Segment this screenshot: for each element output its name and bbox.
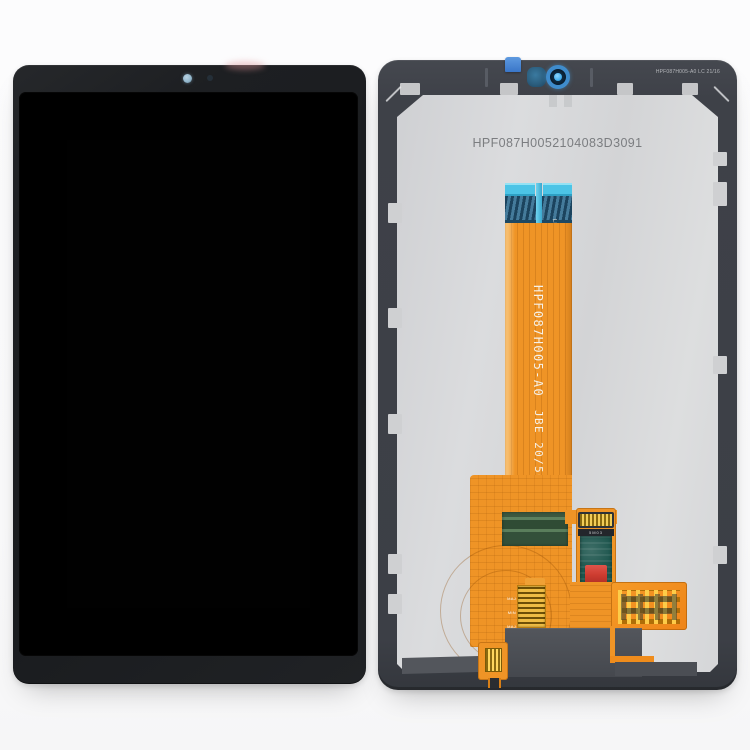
- flex-batch-code: JBE 20/50: [532, 410, 545, 482]
- edge-notch: [388, 554, 402, 574]
- component-grid: [621, 594, 677, 620]
- reflection-highlight: [225, 61, 265, 70]
- corner-highlight: [713, 86, 729, 102]
- edge-notch: [388, 308, 402, 328]
- edge-notch: [388, 414, 402, 434]
- front-screen: [19, 92, 358, 656]
- blue-pull-tab: [505, 57, 521, 72]
- edge-notch: [713, 546, 727, 564]
- bottom-connector-tip: [488, 678, 501, 688]
- antenna-window-tab: [617, 83, 633, 95]
- antenna-window-tab: [400, 83, 420, 95]
- stiffener-bar: [502, 512, 568, 546]
- front-camera-icon: [183, 74, 192, 83]
- emi-shield-step: [615, 662, 697, 676]
- camera-bracket-tab: [549, 95, 557, 107]
- antenna-window-tab: [500, 83, 518, 95]
- emi-shield-left: [402, 656, 479, 674]
- connector-mark-label: 5M03: [578, 529, 614, 536]
- edge-notch: [713, 182, 727, 206]
- camera-bracket-tab: [564, 95, 572, 107]
- serial-number: HPF087H0052104083D3091: [378, 136, 737, 150]
- gold-connector: [578, 512, 614, 528]
- camera-housing-icon: [527, 67, 546, 87]
- pad-label: MIN: [502, 610, 516, 615]
- flex-part-number: HPF087H005-A0: [531, 285, 545, 397]
- product-photo: HPF087H005-A0 LC 21/16 HPF087H0052104083…: [0, 0, 750, 750]
- gold-connector-pads: [485, 648, 502, 672]
- back-panel: HPF087H005-A0 LC 21/16 HPF087H0052104083…: [378, 60, 737, 690]
- bottom-connector-tab: [478, 642, 508, 680]
- front-tablet: [13, 65, 366, 684]
- edge-notch: [388, 203, 402, 223]
- antenna-window-tab: [682, 83, 698, 95]
- frame-slot: [485, 68, 488, 87]
- edge-notch: [388, 594, 402, 614]
- pad-label: MAJ: [502, 596, 516, 601]
- adhesive-tape: [505, 183, 535, 196]
- gold-pad-array-left: [517, 585, 546, 628]
- frame-slot: [590, 68, 593, 87]
- edge-notch: [713, 356, 727, 374]
- model-code-label: HPF087H005-A0 LC 21/16: [628, 69, 720, 76]
- light-sensor-icon: [207, 75, 213, 81]
- edge-notch: [713, 152, 727, 166]
- component-patch-right: [611, 582, 687, 630]
- camera-lens-center: [554, 73, 562, 81]
- adhesive-tape: [543, 183, 572, 196]
